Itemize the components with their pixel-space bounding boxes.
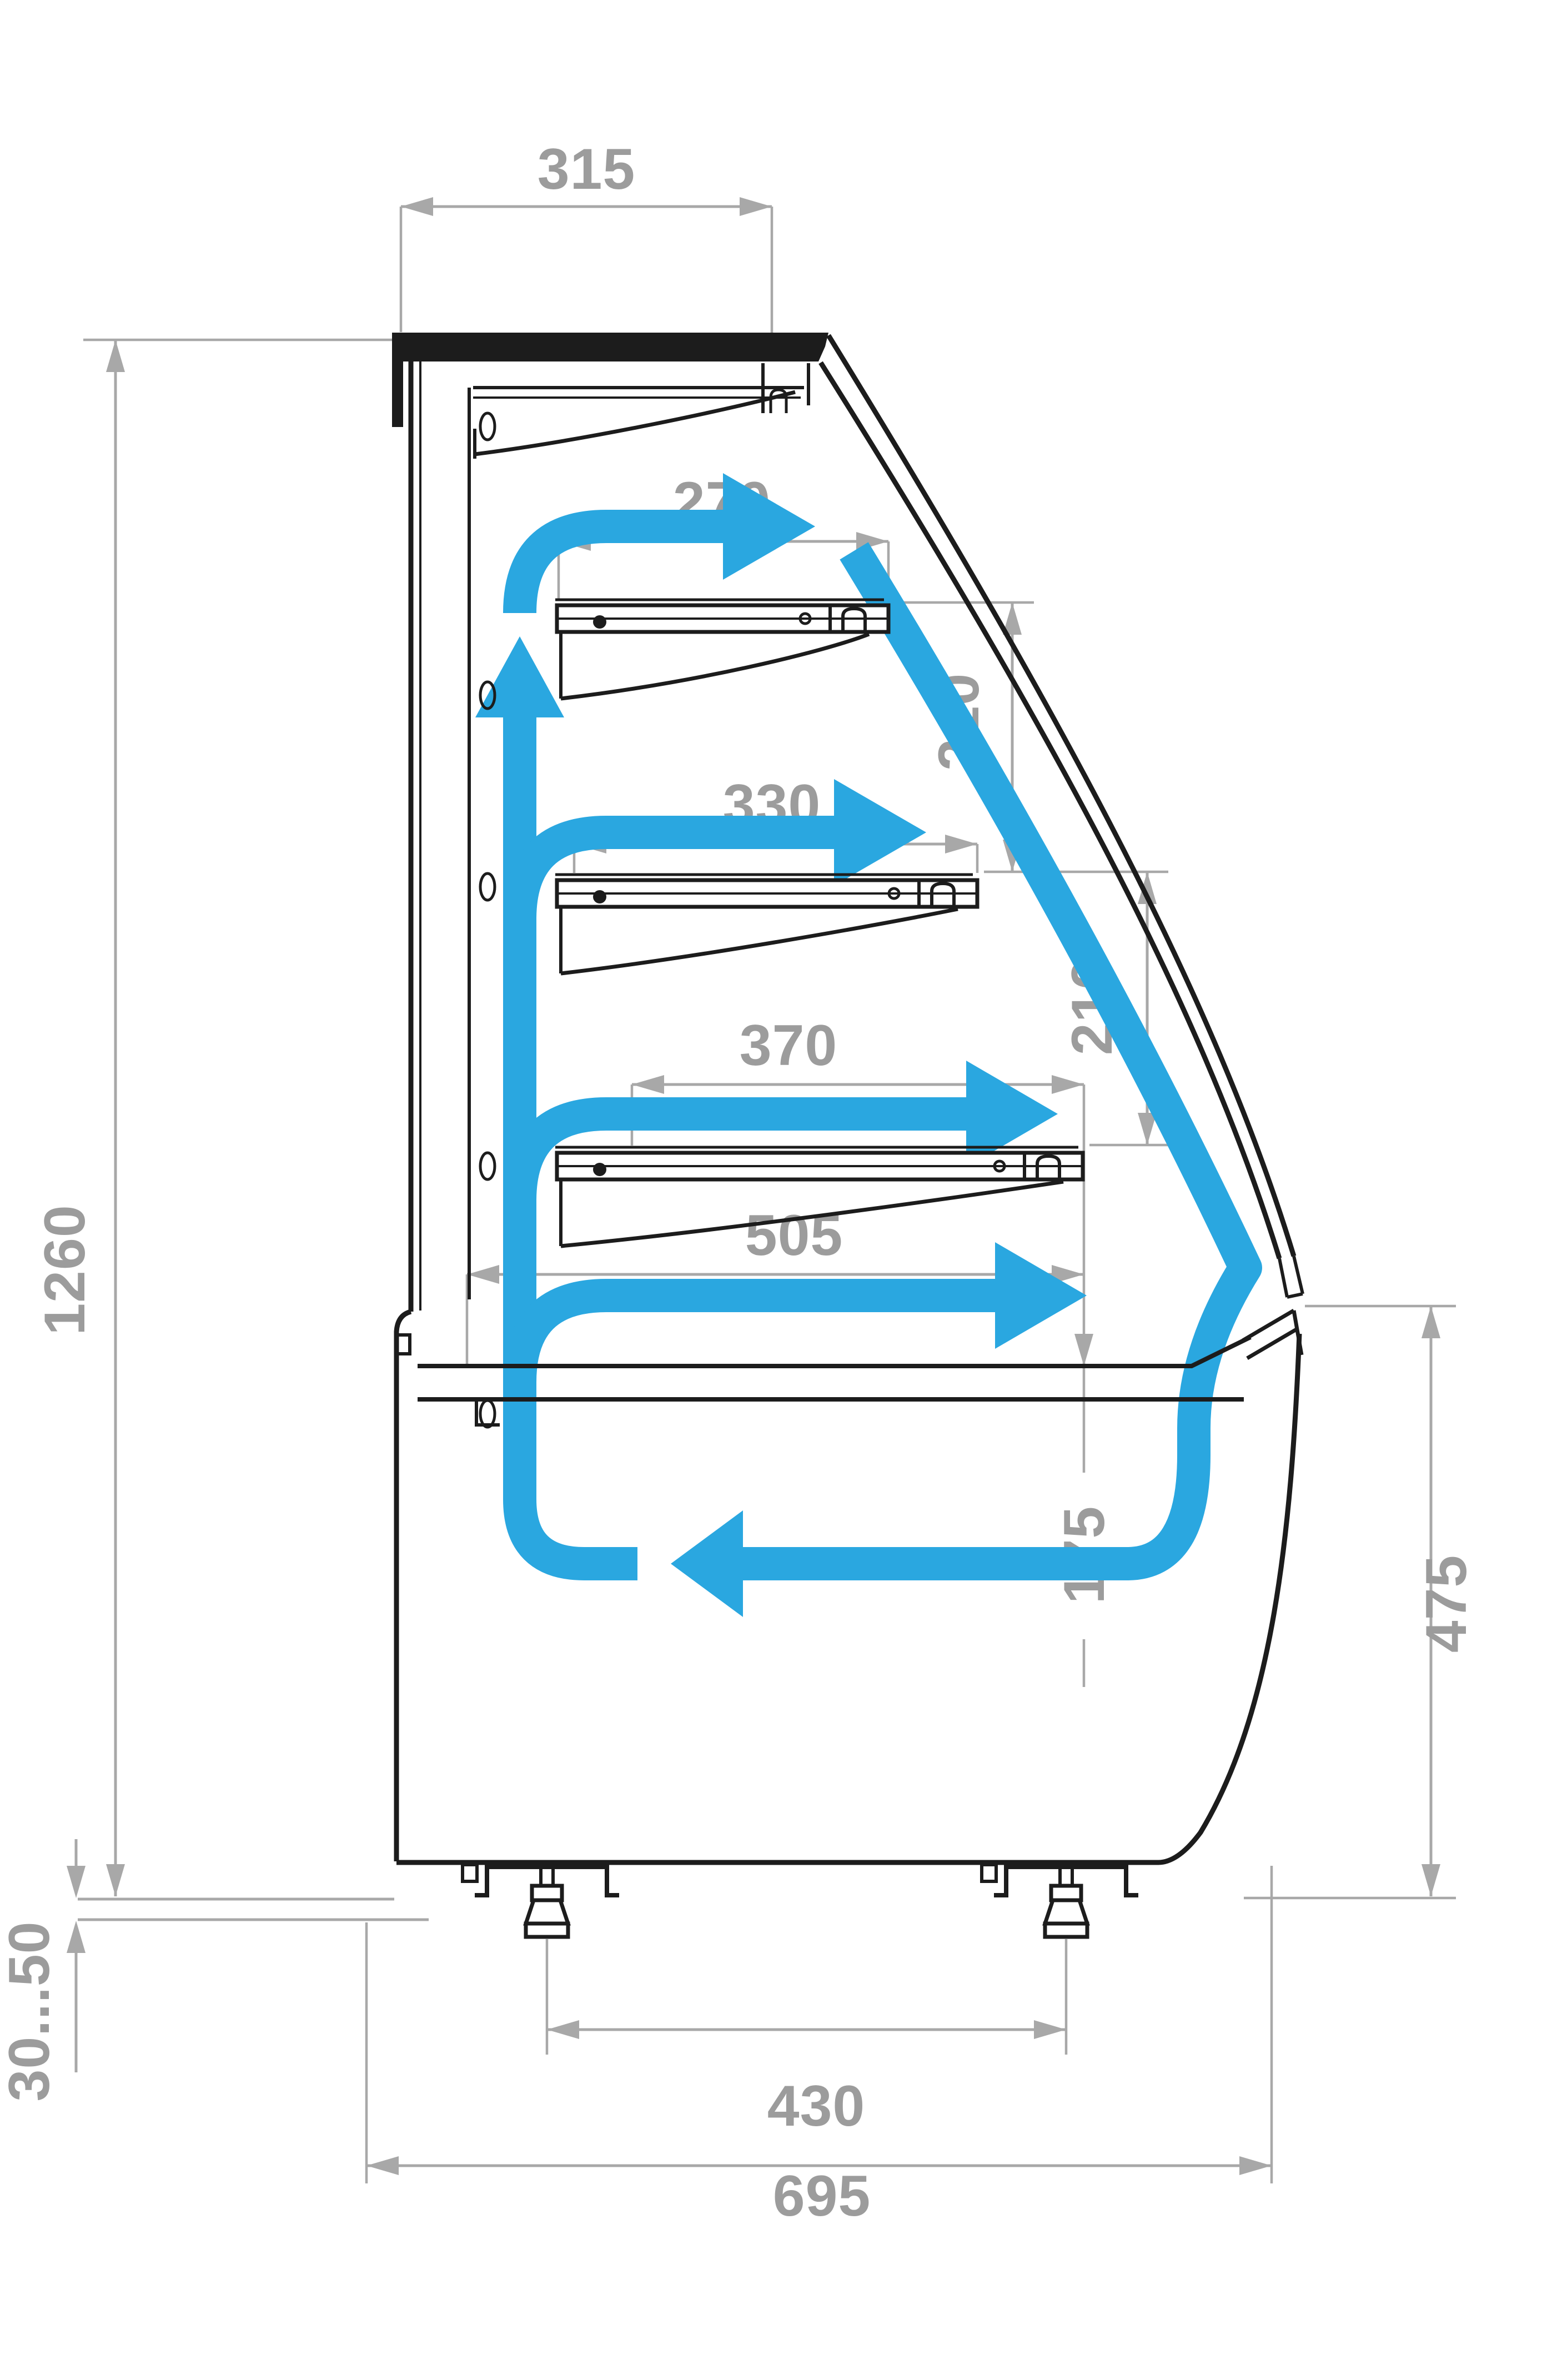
foot-nut <box>532 1886 562 1900</box>
foot-cone <box>526 1900 568 1924</box>
shelf-support-arm <box>561 909 958 973</box>
dim-label: 370 <box>740 1013 838 1078</box>
base-left-wall <box>396 1312 411 1861</box>
shelf-pin-icon <box>593 890 606 903</box>
arrowhead-bottom <box>1422 1864 1440 1896</box>
foot-nut <box>1051 1886 1081 1900</box>
canopy-bracket-arch <box>771 390 786 413</box>
shelf-pin-icon <box>593 615 606 629</box>
canopy-support-arm <box>475 392 795 454</box>
arrowhead-down <box>1074 1334 1093 1366</box>
arrowhead-left <box>547 2020 579 2039</box>
arrowhead-up <box>67 1921 86 1953</box>
foot-clip <box>463 1865 477 1881</box>
shelf-1 <box>555 600 888 699</box>
airflow-group <box>475 473 1245 1617</box>
canopy-left-lip <box>392 333 403 427</box>
arrowhead-left <box>632 1075 664 1094</box>
return-arrowhead-icon <box>671 1510 743 1617</box>
canopy-top-band <box>392 333 828 361</box>
arrowhead-left <box>401 197 433 216</box>
dimension-canopy-depth: 315 <box>401 137 772 333</box>
dim-label: 475 <box>1414 1555 1479 1653</box>
riser-arrowhead-icon <box>475 636 564 717</box>
front-sill-profile <box>1243 1310 1302 1358</box>
floor-reference-lines <box>78 1899 429 1920</box>
dim-label: 695 <box>773 2164 871 2228</box>
arrowhead-right <box>1239 2156 1272 2175</box>
arrowhead-right <box>945 835 977 853</box>
shelf1-supply-arrowhead-icon <box>834 779 926 886</box>
foot-base <box>526 1924 568 1937</box>
mounting-hole-icon <box>480 1153 495 1179</box>
glass-bottom-edge-trim <box>1279 1256 1303 1297</box>
dimension-total-depth: 695 <box>366 1866 1272 2228</box>
drawing-canvas: 315 270 330 370 505 210 <box>0 0 1542 2380</box>
adjustable-foot-left <box>463 1864 619 1937</box>
arrowhead-top <box>106 340 125 372</box>
display-case-cross-section-drawing: 315 270 330 370 505 210 <box>0 0 1542 2380</box>
dim-label: 315 <box>538 137 636 202</box>
foot-cone <box>1045 1900 1087 1924</box>
shelf-pin-icon <box>593 1163 606 1176</box>
extension-lines <box>401 207 772 333</box>
arrowhead-left <box>467 1265 499 1284</box>
dimension-body-height: 1260 <box>33 340 392 1896</box>
dim-label: 430 <box>767 2074 866 2138</box>
arrowhead-down <box>67 1866 86 1898</box>
dim-label: 30...50 <box>0 1921 62 2101</box>
foot-base <box>1045 1924 1087 1937</box>
dimension-leg-adjust-range: 30...50 <box>0 1839 86 2102</box>
mounting-hole-icon <box>480 1400 495 1427</box>
mounting-hole-icon <box>480 873 495 900</box>
arrowhead-right <box>1034 2020 1066 2039</box>
dimension-base-front-height: 475 <box>1244 1306 1479 1898</box>
adjustable-foot-right <box>982 1864 1138 1937</box>
deck-supply-arrow <box>520 1296 995 1382</box>
arrowhead-top <box>1422 1306 1440 1338</box>
deck-supply-arrowhead-icon <box>995 1242 1087 1349</box>
arrowhead-right <box>740 197 772 216</box>
mounting-hole-icon <box>480 413 495 440</box>
extension-lines <box>547 1939 1066 2055</box>
arrowhead-bottom <box>106 1864 125 1896</box>
dim-label: 1260 <box>33 1204 97 1335</box>
shelf-support-arm <box>561 634 869 699</box>
arrowhead-right <box>1052 1075 1084 1094</box>
shelf-2 <box>555 875 977 973</box>
dimension-feet-spacing: 430 <box>547 1939 1066 2138</box>
foot-clip <box>982 1865 996 1881</box>
arrowhead-left <box>366 2156 399 2175</box>
